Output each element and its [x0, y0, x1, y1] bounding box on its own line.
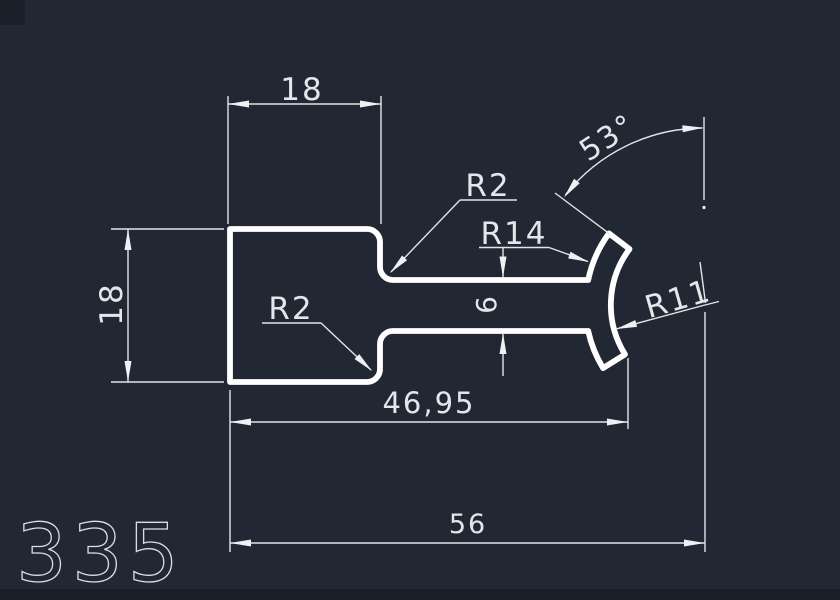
- cad-drawing-canvas[interactable]: 18 18 6 46,95 56 53° R2 R2 R14 R11: [0, 0, 840, 600]
- arrow-down-icon: [125, 361, 132, 382]
- arrow-left-icon: [228, 101, 249, 108]
- dim-neck-height-label: 6: [470, 294, 503, 314]
- cad-viewport[interactable]: 18 18 6 46,95 56 53° R2 R2 R14 R11: [0, 0, 840, 600]
- arrow-right-icon: [684, 540, 705, 547]
- dim-top-width-label: 18: [280, 72, 323, 108]
- ext-line-angle-flank: [555, 193, 610, 234]
- ext-line-tick: [702, 206, 705, 209]
- dim-bottom-fillet-label: R2: [268, 291, 313, 327]
- arrow-leader-icon: [355, 354, 373, 371]
- dim-flange-inner-radius-label: R11: [641, 273, 715, 326]
- dim-body-length-label: 46,95: [382, 386, 475, 420]
- drawing-number: 335: [16, 507, 184, 600]
- arrow-leader-icon: [568, 252, 589, 262]
- arrow-left-icon: [230, 419, 251, 426]
- arrow-right-icon: [607, 419, 628, 426]
- arrow-left-icon: [230, 540, 251, 547]
- dim-flange-angle-label: 53°: [573, 107, 642, 169]
- arrow-arc-start-icon: [564, 179, 580, 198]
- arrow-arc-end-icon: [682, 125, 703, 132]
- corner-artifact: [0, 0, 25, 25]
- arrow-right-icon: [360, 101, 381, 108]
- arrow-up-icon: [125, 229, 132, 250]
- arrow-up-icon: [500, 333, 507, 354]
- dim-top-fillet-label: R2: [465, 168, 510, 204]
- dim-flange-outer-radius-label: R14: [481, 216, 548, 252]
- arrow-down-icon: [500, 257, 507, 278]
- arrow-leader-icon: [616, 320, 637, 329]
- dim-total-length-label: 56: [449, 509, 487, 540]
- dim-left-height-label: 18: [94, 282, 130, 325]
- arrow-leader-icon: [390, 256, 407, 274]
